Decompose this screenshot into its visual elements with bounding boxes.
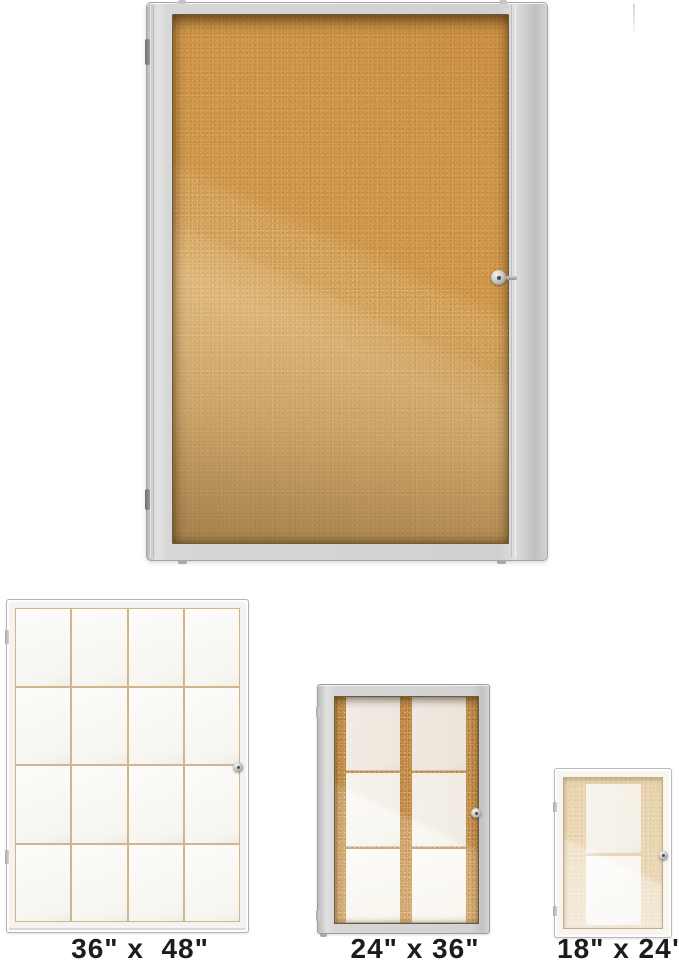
paper-sheet <box>185 845 239 922</box>
foot <box>178 560 187 564</box>
hinge-icon <box>316 707 320 718</box>
variant-size-label-36x48: 36" x 48" <box>20 935 260 963</box>
glass-reflection <box>335 697 478 923</box>
frame-seam <box>153 5 154 558</box>
main-board <box>146 2 548 561</box>
hinge-icon <box>316 910 320 921</box>
hinge-icon <box>145 39 150 65</box>
keyhole-icon <box>237 766 240 769</box>
paper-sheet <box>129 766 183 843</box>
hinge-icon <box>553 802 557 812</box>
paper-sheet <box>72 609 126 686</box>
lock-icon <box>659 851 668 860</box>
hinge-icon <box>5 850 9 864</box>
keyhole-icon <box>475 812 478 815</box>
frame-seam <box>515 5 516 558</box>
variant-size-label-18x24: 18" x 24" <box>557 935 679 963</box>
paper-sheet <box>185 766 239 843</box>
lock-icon <box>471 808 481 818</box>
hinge-icon <box>145 489 150 510</box>
paper-sheet <box>129 845 183 922</box>
foot <box>320 934 327 937</box>
paper-sheet <box>16 609 70 686</box>
paper-sheet <box>129 609 183 686</box>
cork-surface <box>172 14 509 544</box>
foot <box>497 560 506 564</box>
mount-tab <box>499 0 507 4</box>
paper-sheet <box>72 766 126 843</box>
paper-sheet <box>16 766 70 843</box>
variant-board-18x24 <box>554 768 672 938</box>
paper-grid <box>15 608 240 922</box>
variant-size-label-24x36: 24" x 36" <box>340 935 490 963</box>
reflection-artifact <box>633 4 635 32</box>
lock-arm <box>506 276 517 280</box>
paper-sheet <box>16 688 70 765</box>
hinge-icon <box>553 906 557 916</box>
glass-reflection <box>564 778 662 928</box>
cork-surface <box>563 777 663 929</box>
paper-sheet <box>129 688 183 765</box>
frame-seam <box>150 5 151 558</box>
frame-seam <box>511 5 512 558</box>
paper-sheet <box>72 688 126 765</box>
mount-tab <box>178 0 186 4</box>
variant-board-24x36 <box>317 684 490 934</box>
paper-sheet <box>16 845 70 922</box>
hinge-icon <box>5 630 9 644</box>
paper-sheet <box>185 688 239 765</box>
variant-board-36x48 <box>6 599 249 933</box>
paper-sheet <box>72 845 126 922</box>
product-image: 36" x 48" 24" x 36" 18" x 24" <box>0 0 679 963</box>
glass-reflection <box>173 15 508 543</box>
keyhole-icon <box>497 276 501 280</box>
keyhole-icon <box>662 854 665 857</box>
lock-icon <box>233 762 243 772</box>
cork-surface <box>334 696 479 924</box>
paper-sheet <box>185 609 239 686</box>
lock-icon <box>491 270 506 285</box>
